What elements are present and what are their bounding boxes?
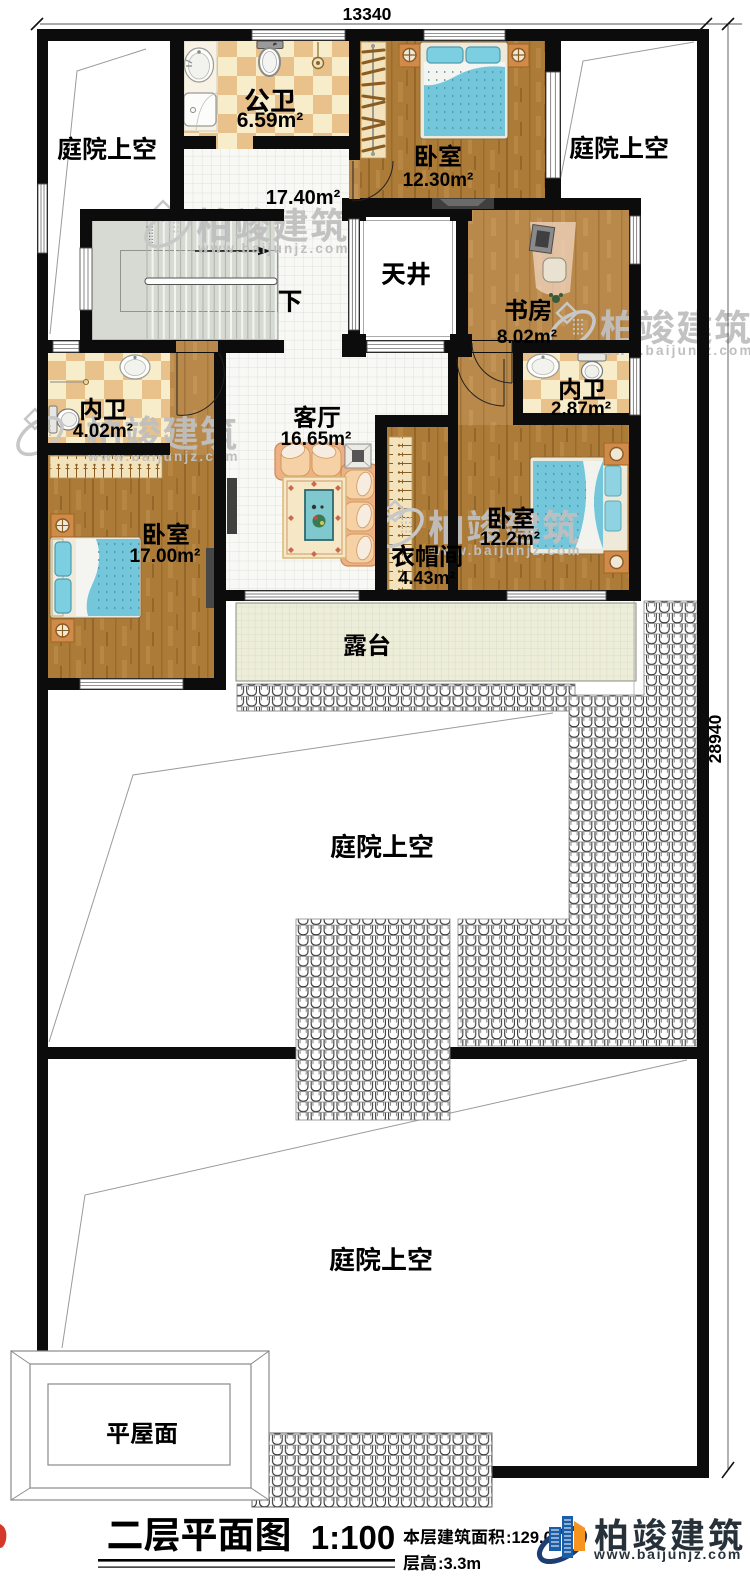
svg-text:28940: 28940 — [705, 714, 725, 763]
svg-text:12.30m²: 12.30m² — [403, 170, 474, 191]
svg-text:13340: 13340 — [343, 4, 392, 24]
svg-text:8.02m²: 8.02m² — [497, 327, 557, 348]
svg-text:17.40m²: 17.40m² — [266, 187, 341, 209]
svg-text:6.59m²: 6.59m² — [237, 109, 304, 132]
svg-text:12.2m²: 12.2m² — [480, 529, 540, 550]
svg-text::3.3m: :3.3m — [438, 1555, 481, 1573]
svg-text:2.87m²: 2.87m² — [551, 399, 611, 420]
svg-text:17.00m²: 17.00m² — [130, 546, 201, 567]
svg-text:16.65m²: 16.65m² — [281, 429, 352, 450]
svg-text:1:100: 1:100 — [311, 1519, 395, 1556]
svg-text:www.baijunjz.com: www.baijunjz.com — [197, 241, 350, 256]
svg-text:4.02m²: 4.02m² — [73, 421, 133, 442]
svg-text:4.43m²: 4.43m² — [398, 568, 455, 588]
